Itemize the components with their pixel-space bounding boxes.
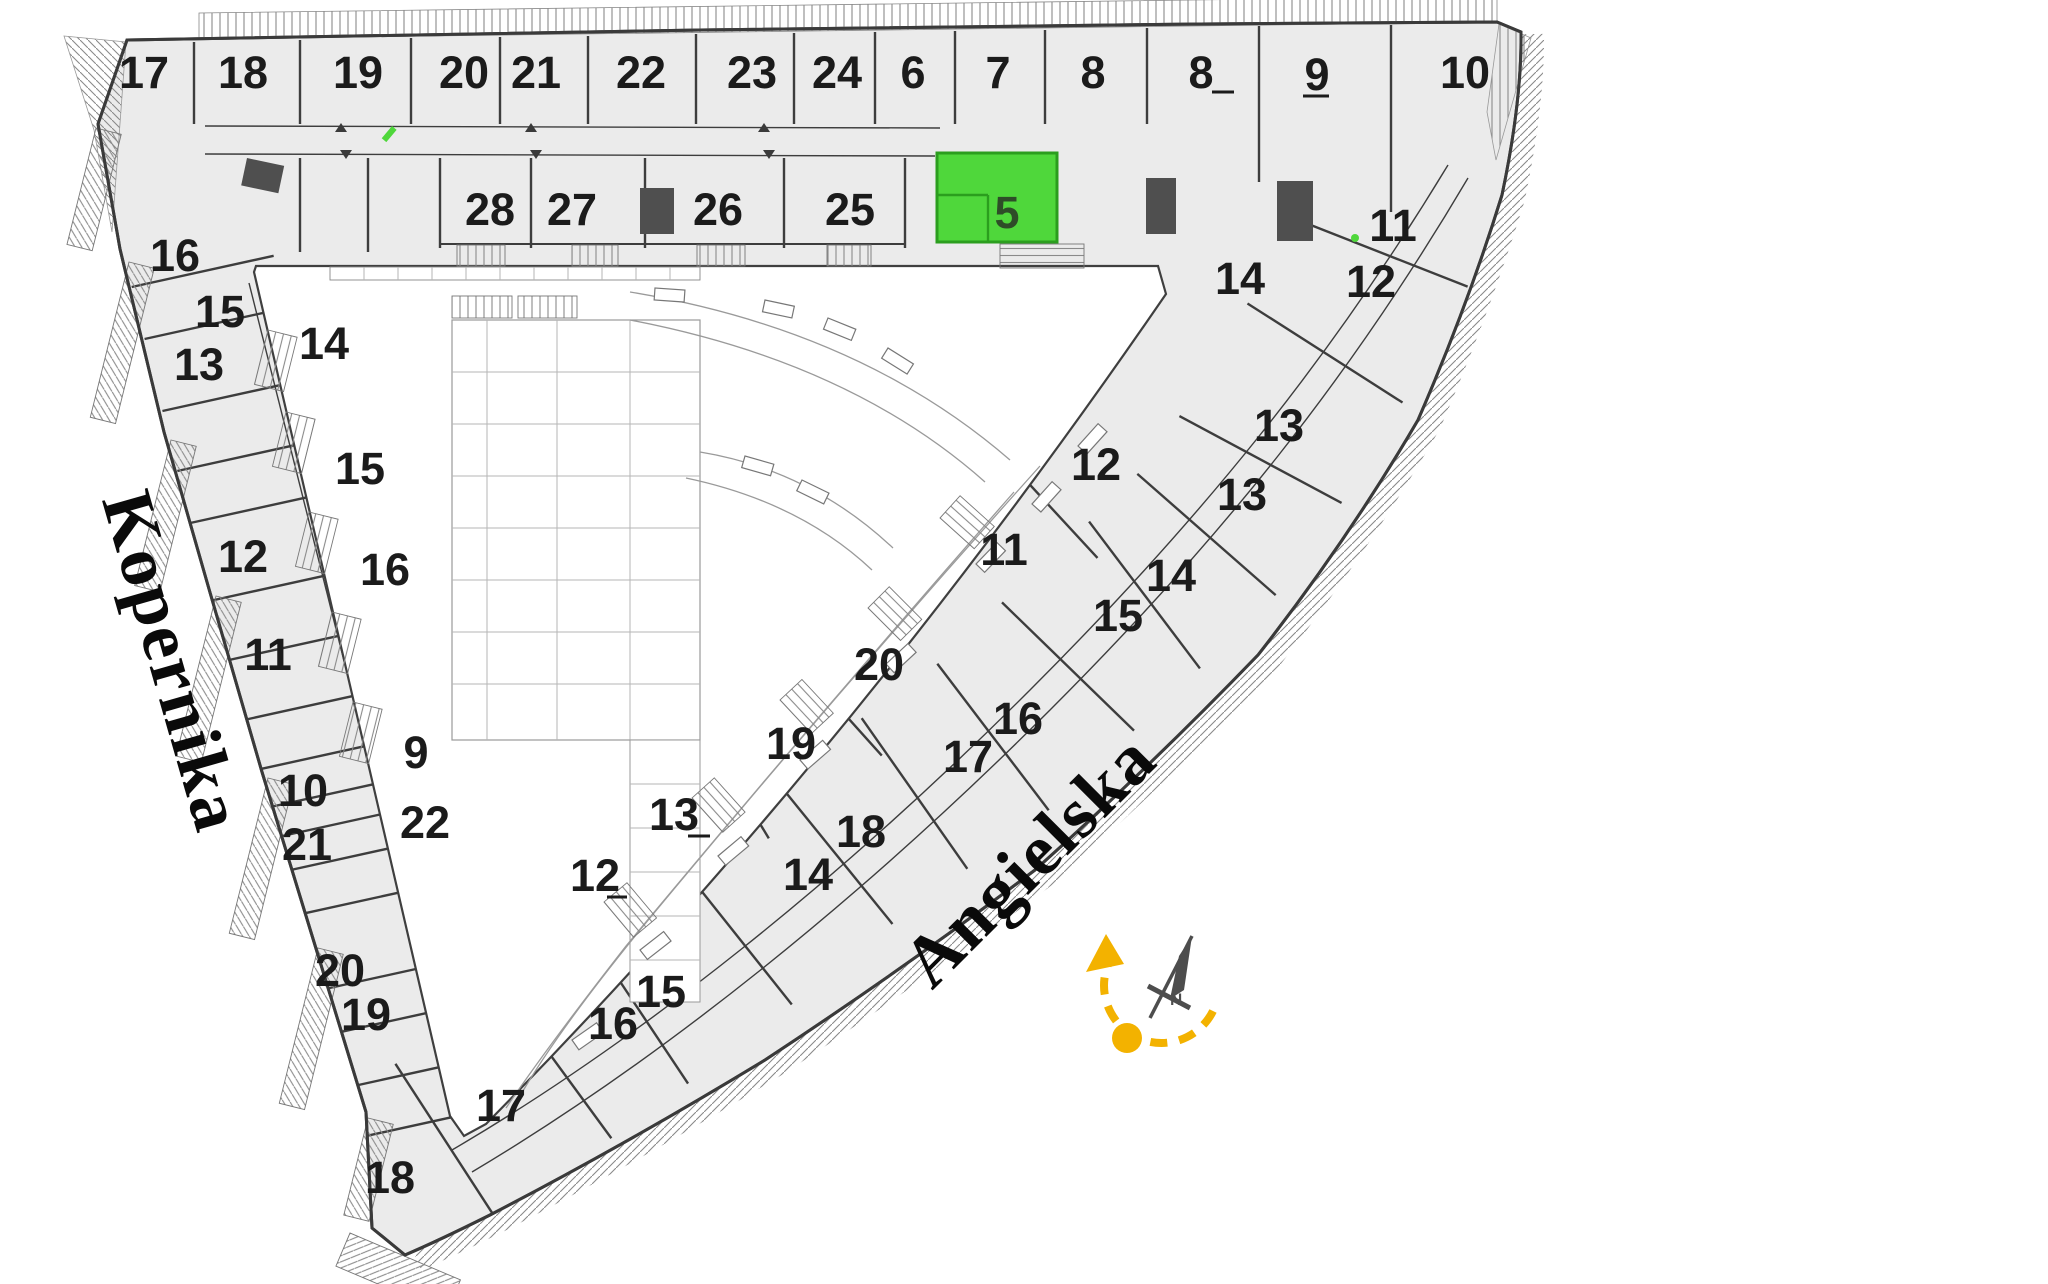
compass-arrowhead (1086, 934, 1124, 972)
unit-number-13: 13 (649, 789, 699, 840)
pergola-strip (452, 296, 512, 318)
unit-number-17: 17 (476, 1080, 526, 1131)
unit-number-14: 14 (299, 318, 349, 369)
north-label: N (1170, 990, 1182, 1009)
unit-number-26: 26 (693, 184, 743, 235)
unit-number-13: 13 (1254, 400, 1304, 451)
unit-number-18: 18 (218, 47, 268, 98)
floor-plan: 5 17181920212223246788910282726251411121… (0, 0, 2048, 1284)
unit-number-24: 24 (812, 47, 862, 98)
north-needle-icon: N (1148, 936, 1192, 1018)
unit-number-27: 27 (547, 184, 597, 235)
unit-number-14: 14 (1215, 253, 1265, 304)
highlighted-unit-5[interactable]: 5 (937, 153, 1057, 242)
unit-number-18: 18 (365, 1152, 415, 1203)
green-entrance-dot (1351, 234, 1359, 242)
unit-number-8: 8 (1080, 47, 1105, 98)
unit-number-9: 9 (403, 727, 428, 778)
unit-number-10: 10 (1440, 47, 1490, 98)
unit-number-12: 12 (570, 850, 620, 901)
unit-number-8: 8 (1188, 47, 1213, 98)
compass-dot (1112, 1023, 1142, 1053)
unit-number-22: 22 (400, 797, 450, 848)
unit-number-22: 22 (616, 47, 666, 98)
unit-number-23: 23 (727, 47, 777, 98)
unit-number-15: 15 (636, 966, 686, 1017)
unit-number-20: 20 (439, 47, 489, 98)
unit-number-12: 12 (1071, 439, 1121, 490)
unit-number-15: 15 (335, 443, 385, 494)
unit-number-16: 16 (360, 544, 410, 595)
unit-number-11: 11 (980, 524, 1028, 575)
unit-number-18: 18 (836, 806, 886, 857)
unit-number-21: 21 (282, 819, 332, 870)
unit-number-11: 11 (1369, 200, 1417, 251)
unit-number-9: 9 (1304, 49, 1329, 100)
unit-number-25: 25 (825, 184, 875, 235)
unit-number-13: 13 (174, 339, 224, 390)
unit-number-20: 20 (854, 639, 904, 690)
unit-number-6: 6 (900, 47, 925, 98)
unit-number-16: 16 (588, 998, 638, 1049)
unit-number-14: 14 (1146, 550, 1196, 601)
unit-number-19: 19 (333, 47, 383, 98)
unit-number-11: 11 (244, 629, 292, 680)
unit-number-7: 7 (985, 47, 1010, 98)
unit-number-28: 28 (465, 184, 515, 235)
unit-number-19: 19 (766, 718, 816, 769)
unit-number-14: 14 (783, 849, 833, 900)
unit-number-16: 16 (150, 230, 200, 281)
unit-number-10: 10 (278, 765, 328, 816)
unit-number-21: 21 (511, 47, 561, 98)
unit-number-15: 15 (1093, 590, 1143, 641)
unit-number-16: 16 (993, 693, 1043, 744)
pergola-strip (518, 296, 577, 318)
terrace-strip (330, 267, 700, 280)
unit-number-15: 15 (195, 286, 245, 337)
unit-number-13: 13 (1217, 469, 1267, 520)
compass-icon: N (1086, 934, 1213, 1053)
bench (654, 288, 685, 302)
unit-number-17: 17 (943, 731, 993, 782)
highlighted-unit-number: 5 (994, 187, 1019, 238)
unit-number-19: 19 (341, 989, 391, 1040)
unit-number-12: 12 (1346, 256, 1396, 307)
floor-plan-page: 5 17181920212223246788910282726251411121… (0, 0, 2048, 1284)
unit-number-17: 17 (119, 47, 169, 98)
unit-number-12: 12 (218, 531, 268, 582)
